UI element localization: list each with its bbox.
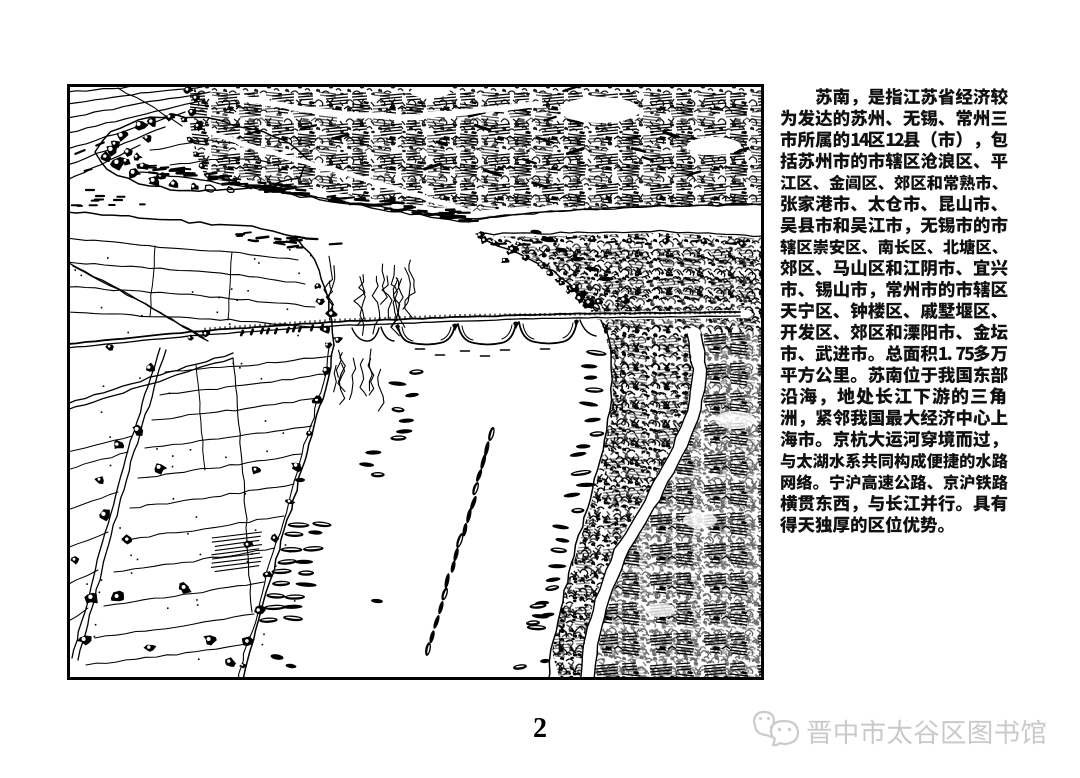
svg-text:2: 2 (533, 713, 547, 744)
